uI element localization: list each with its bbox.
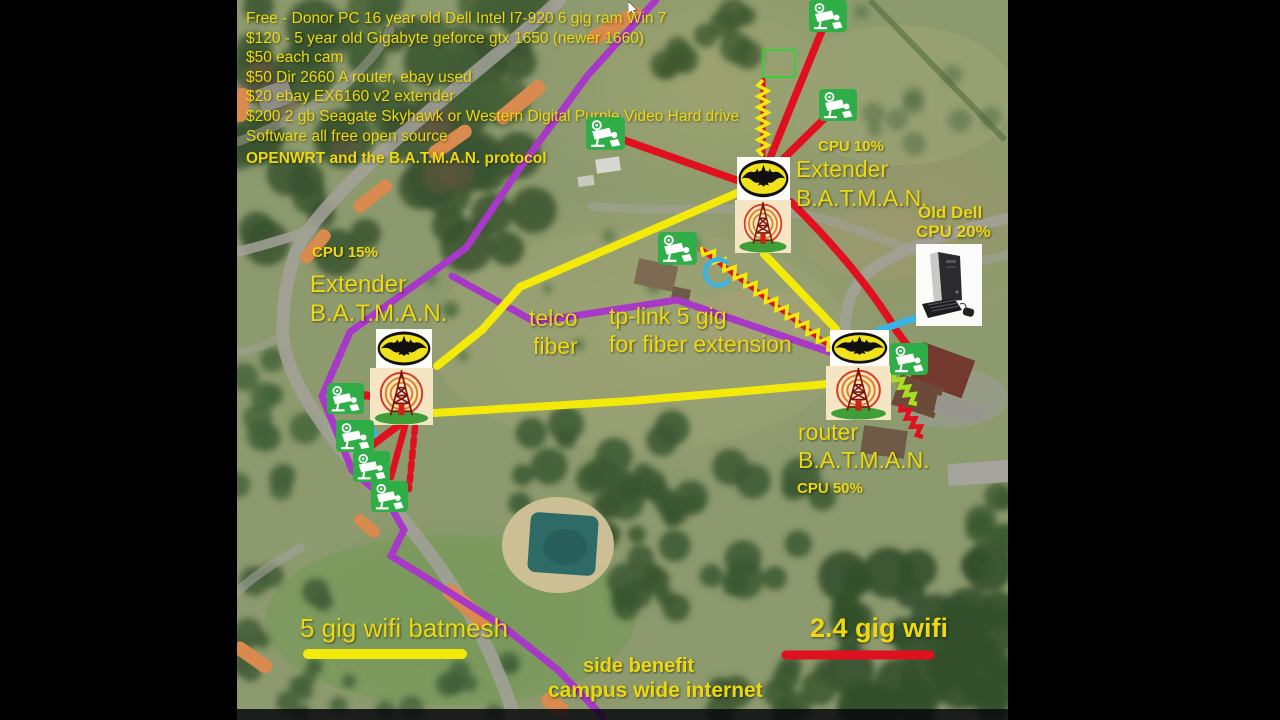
cctv-camera-icon — [586, 117, 625, 152]
cost-list-item: Software all free open source — [246, 128, 739, 148]
cctv-camera-icon — [353, 451, 390, 482]
cctv-camera-icon — [819, 89, 857, 121]
right-node-protocol: B.A.T.M.A.N. — [798, 448, 930, 472]
right-radio-tower — [826, 366, 891, 420]
video-frame: Free - Donor PC 16 year old Dell Intel I… — [0, 0, 1280, 720]
cctv-camera-icon — [371, 481, 408, 512]
cost-list-item: $20 ebay EX6160 v2 extender — [246, 88, 739, 108]
cost-list-item: $200 2 gb Seagate Skyhawk or Western Dig… — [246, 108, 739, 128]
right-batman-logo — [830, 330, 889, 366]
cctv-camera-icon — [658, 232, 697, 265]
cctv-camera-icon — [890, 343, 928, 378]
cctv-camera-icon — [890, 343, 928, 375]
video-progress-bar[interactable] — [237, 709, 1008, 720]
cctv-camera-icon — [371, 481, 408, 512]
old-dell-cpu-label: CPU 20% — [916, 223, 991, 241]
cctv-camera-icon — [819, 89, 857, 122]
side-benefit-label-line2: campus wide internet — [548, 680, 763, 702]
cctv-camera-icon — [336, 420, 374, 452]
cost-list-item: $50 each cam — [246, 49, 739, 69]
radio-tower-icon — [735, 200, 791, 253]
batman-logo-icon — [376, 329, 432, 368]
cctv-camera-icon — [809, 0, 847, 31]
central-node-title: Extender — [796, 157, 888, 181]
cost-list-item: $120 - 5 year old Gigabyte geforce gtx 1… — [246, 30, 739, 50]
cost-list-item: $50 Dir 2660 A router, ebay used — [246, 69, 739, 89]
right-cpu-label: CPU 50% — [797, 481, 863, 497]
radio-tower-icon — [826, 366, 891, 420]
tplink-label-line2: for fiber extension — [609, 332, 792, 356]
wifi5-legend-label: 5 gig wifi batmesh — [300, 615, 508, 642]
red-zigzag-link — [900, 404, 923, 437]
cctv-camera-icon — [336, 420, 374, 452]
left-cpu-label: CPU 15% — [312, 245, 378, 261]
cctv-camera-icon — [658, 232, 697, 267]
central-cpu-label: CPU 10% — [818, 139, 884, 155]
cctv-camera-icon — [353, 451, 390, 481]
wifi24-legend-label: 2.4 gig wifi — [810, 614, 948, 642]
radio-tower-icon — [370, 368, 433, 425]
tplink-label-line1: tp-link 5 gig — [609, 304, 727, 328]
telco-fiber-label-line2: fiber — [533, 334, 578, 358]
right-node-title: router — [798, 420, 858, 444]
dell-pc-photo — [916, 244, 982, 326]
left-batman-logo — [376, 329, 432, 368]
letterbox-right — [1008, 0, 1280, 720]
letterbox-left — [0, 0, 237, 720]
left-node-protocol: B.A.T.M.A.N. — [310, 301, 447, 326]
old-dell-label: Old Dell — [918, 204, 982, 222]
side-benefit-label-line1: side benefit — [583, 656, 694, 677]
central-node-protocol: B.A.T.M.A.N. — [796, 186, 928, 210]
left-node-title: Extender — [310, 272, 406, 297]
central-batman-logo — [737, 157, 790, 200]
batman-logo-icon — [737, 157, 790, 200]
cost-list-item: Free - Donor PC 16 year old Dell Intel I… — [246, 10, 739, 30]
cost-list: Free - Donor PC 16 year old Dell Intel I… — [246, 10, 739, 168]
lime-zigzag-link — [894, 374, 917, 404]
cctv-camera-icon — [327, 383, 364, 414]
protocol-note: OPENWRT and the B.A.T.M.A.N. protocol — [246, 150, 739, 168]
cctv-camera-icon — [327, 383, 364, 413]
cctv-camera-icon — [586, 117, 625, 150]
telco-fiber-label-line1: telco — [529, 306, 578, 330]
central-radio-tower — [735, 200, 791, 253]
batman-logo-icon — [830, 330, 889, 366]
left-radio-tower — [370, 368, 433, 425]
green-boundary-box — [762, 49, 796, 78]
cctv-camera-icon — [809, 0, 847, 32]
